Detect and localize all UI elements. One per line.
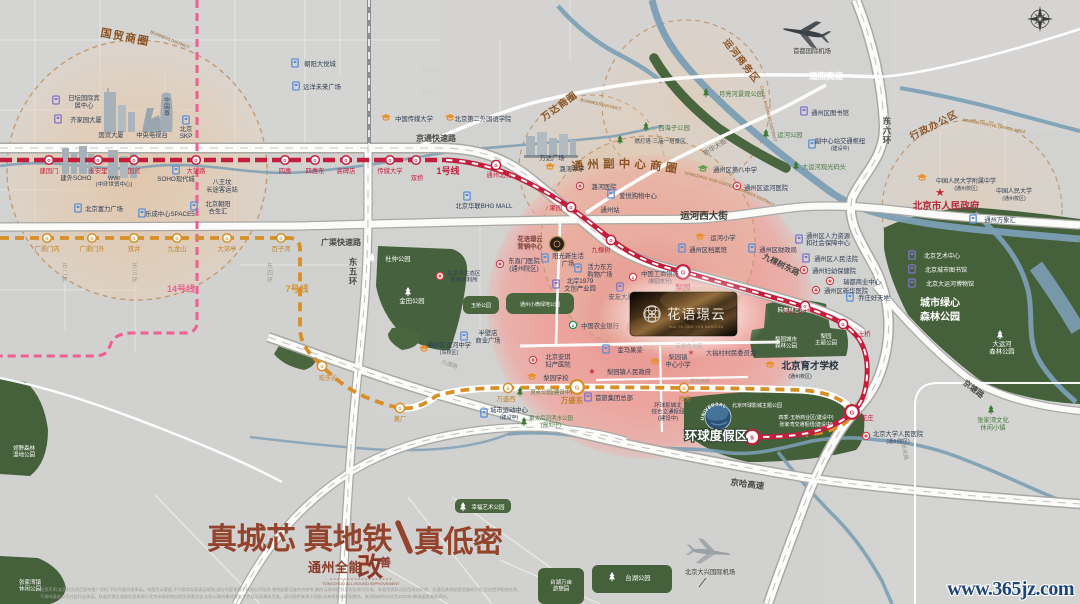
svg-text:京通快速路: 京通快速路 (416, 133, 457, 143)
svg-text:北京环球影城主题公园: 北京环球影城主题公园 (732, 402, 782, 409)
svg-text:玉桥公园: 玉桥公园 (471, 302, 491, 309)
svg-text:G: G (414, 158, 417, 163)
svg-text:G: G (609, 238, 612, 243)
svg-text:G: G (132, 158, 135, 163)
svg-text:大郊亭: 大郊亭 (218, 244, 237, 253)
svg-text:半壁店商业广场: 半壁店商业广场 (475, 328, 500, 345)
svg-text:花语璟云营销中心: 花语璟云营销中心 (517, 234, 543, 251)
svg-text:北京市生态区农桥水利所: 北京市生态区农桥水利所 (447, 269, 481, 284)
svg-text:中央电视台: 中央电视台 (136, 130, 167, 139)
svg-text:G: G (47, 158, 50, 163)
svg-text:东三环: 东三环 (132, 262, 138, 284)
svg-text:杜仲公园: 杜仲公园 (385, 254, 410, 263)
svg-text:朝阳路: 朝阳路 (422, 89, 440, 97)
svg-text:G: G (96, 158, 99, 163)
svg-text:14号线: 14号线 (167, 283, 195, 294)
svg-text:建外SOHO: 建外SOHO (60, 173, 91, 182)
svg-text:双桥: 双桥 (411, 173, 424, 182)
svg-text:国贸: 国贸 (128, 166, 141, 175)
svg-text:韩美林艺术馆: 韩美林艺术馆 (777, 306, 811, 314)
svg-text:G: G (575, 386, 580, 392)
svg-text:万盛东: 万盛东 (560, 395, 584, 405)
svg-text:首都国际机场: 首都国际机场 (793, 46, 831, 55)
svg-text:7号线: 7号线 (285, 283, 308, 294)
svg-text:通州区档案馆: 通州区档案馆 (689, 245, 727, 254)
svg-text:顶点公园(建设中): 顶点公园(建设中) (530, 388, 572, 396)
svg-text:运河小学: 运河小学 (710, 233, 735, 242)
svg-text:东直门医院(通州院区): 东直门医院(通州院区) (508, 256, 540, 273)
svg-text:(通州校区): (通州校区) (788, 373, 812, 380)
svg-text:乔庄好天地: 乔庄好天地 (858, 293, 890, 302)
svg-text:四惠: 四惠 (279, 166, 292, 175)
svg-text:善: 善 (380, 555, 391, 569)
svg-text:黄厂: 黄厂 (394, 414, 407, 423)
svg-text:通州区人力资源和社会保障中心: 通州区人力资源和社会保障中心 (806, 231, 851, 247)
svg-text:北京大兴国际机场: 北京大兴国际机场 (685, 567, 735, 576)
svg-text:G: G (313, 158, 316, 163)
svg-text:通州全能: 通州全能 (308, 560, 362, 575)
svg-text:通州区图书馆: 通州区图书馆 (811, 108, 849, 117)
svg-text:北京朝阳合生汇: 北京朝阳合生汇 (205, 199, 230, 216)
svg-text:HUA YU JING YUN MANSION: HUA YU JING YUN MANSION (669, 325, 724, 329)
svg-text:G: G (90, 236, 93, 241)
svg-text:G: G (279, 236, 282, 241)
svg-text:北京第二外国语学院: 北京第二外国语学院 (455, 114, 512, 123)
svg-text:通州站: 通州站 (601, 205, 621, 214)
svg-text:花语璟云: 花语璟云 (667, 307, 726, 322)
svg-text:大运河观光码头: 大运河观光码头 (802, 162, 846, 171)
svg-text:乐成中心SPACE5: 乐成中心SPACE5 (145, 209, 195, 218)
svg-text:运河西大街: 运河西大街 (680, 210, 728, 222)
svg-text:广渠门外: 广渠门外 (79, 244, 105, 253)
svg-text:TONGZHOU ALL-ROUND IMPROVEMENT: TONGZHOU ALL-ROUND IMPROVEMENT (322, 581, 400, 586)
svg-text:北京市人民政府: 北京市人民政府 (913, 200, 980, 212)
svg-text:首旅集团总部: 首旅集团总部 (595, 393, 633, 402)
svg-text:G: G (850, 411, 855, 417)
svg-text:广渠快速路: 广渠快速路 (321, 237, 362, 247)
svg-text:S: S (750, 436, 754, 442)
svg-text:★: ★ (935, 187, 945, 199)
svg-text:张家湾文化休闲小镇: 张家湾文化休闲小镇 (977, 415, 1009, 432)
svg-text:运河公园: 运河公园 (777, 131, 802, 139)
svg-text:www.365jz.com: www.365jz.com (947, 578, 1075, 600)
svg-text:金田公园: 金田公园 (399, 296, 424, 305)
svg-text:活力东方购物广场: 活力东方购物广场 (587, 262, 612, 279)
svg-text:G: G (194, 158, 197, 163)
svg-text:传媒大学: 传媒大学 (377, 166, 402, 175)
svg-text:环球度假区: 环球度假区 (685, 428, 748, 443)
svg-text:北京城市图书馆: 北京城市图书馆 (925, 266, 967, 274)
svg-text:远洋未来广场: 远洋未来广场 (303, 82, 341, 91)
svg-text:万盛西: 万盛西 (497, 394, 516, 403)
svg-text:东四环: 东四环 (267, 262, 273, 284)
svg-text:北京艺术中心: 北京艺术中心 (924, 252, 960, 260)
svg-text:通州北苑: 通州北苑 (486, 170, 512, 179)
svg-text:瑞都商业中心: 瑞都商业中心 (843, 277, 881, 286)
svg-text:G: G (225, 236, 228, 241)
svg-text:通州万象汇: 通州万象汇 (984, 215, 1015, 224)
svg-text:翠光南街: 翠光南街 (690, 378, 710, 385)
svg-text:北京大运河博物馆: 北京大运河博物馆 (926, 280, 974, 288)
svg-text:G: G (320, 364, 323, 369)
svg-text:群芳: 群芳 (679, 394, 692, 403)
svg-text:永安里: 永安里 (89, 166, 108, 175)
svg-text:通州妇幼保健院: 通州妇幼保健院 (812, 266, 857, 275)
svg-text:九棵树: 九棵树 (592, 245, 612, 254)
svg-text:SOHO现代城: SOHO现代城 (157, 174, 195, 183)
svg-text:北京富力广场: 北京富力广场 (85, 204, 123, 213)
svg-text:通州区运河医院: 通州区运河医院 (744, 183, 789, 192)
svg-text:中国传媒大学: 中国传媒大学 (395, 114, 433, 123)
svg-text:通州小微绿地公园: 通州小微绿地公园 (520, 301, 560, 308)
svg-text:梨园镇人民政府: 梨园镇人民政府 (607, 367, 651, 376)
svg-text:万达广场: 万达广场 (539, 153, 564, 162)
svg-text:幸福艺术公园: 幸福艺术公园 (471, 503, 505, 511)
svg-text:北岸1979文创产业园: 北岸1979文创产业园 (564, 277, 595, 293)
svg-text:G: G (682, 386, 685, 391)
svg-text:真低密: 真低密 (414, 525, 503, 559)
svg-text:双井: 双井 (128, 244, 141, 253)
svg-text:梨园学校: 梨园学校 (543, 373, 569, 382)
svg-text:张家湾交通枢纽(建设中): 张家湾交通枢纽(建设中) (779, 421, 833, 428)
svg-text:齐家园大厦: 齐家园大厦 (70, 115, 102, 124)
svg-text:G: G (132, 236, 135, 241)
svg-text:东五环: 东五环 (349, 257, 358, 286)
svg-text:四季·玉桥商业区(建设中): 四季·玉桥商业区(建设中) (779, 414, 834, 421)
svg-text:东六环: 东六环 (883, 116, 892, 145)
svg-text:爱悦购物中心: 爱悦购物中心 (619, 191, 657, 200)
svg-text:中国尊: 中国尊 (164, 96, 170, 117)
svg-text:大运河森林公园: 大运河森林公园 (989, 339, 1014, 356)
svg-text:G: G (506, 386, 509, 391)
svg-text:G: G (569, 205, 572, 210)
svg-text:G: G (283, 158, 286, 163)
svg-text:广渠门内: 广渠门内 (34, 244, 59, 253)
svg-text:月亮河景观公园: 月亮河景观公园 (719, 89, 763, 98)
svg-text:北京育才学校: 北京育才学校 (781, 360, 839, 372)
svg-text:朝阳大悦城: 朝阳大悦城 (304, 59, 336, 68)
svg-text:高碑店: 高碑店 (337, 166, 356, 175)
svg-text:北京华联BHG MALL: 北京华联BHG MALL (455, 201, 513, 210)
svg-text:燃灯塔·三庙一塔景区: 燃灯塔·三庙一塔景区 (634, 137, 686, 145)
svg-text:花庄: 花庄 (861, 413, 874, 422)
svg-text:通州区第八中学: 通州区第八中学 (713, 165, 757, 174)
svg-text:G: G (841, 322, 844, 327)
svg-text:G: G (45, 236, 48, 241)
svg-text:梨园城市森林公园: 梨园城市森林公园 (775, 335, 798, 350)
svg-text:朝阳北路: 朝阳北路 (422, 66, 446, 74)
svg-text:通燕高速: 通燕高速 (809, 71, 844, 81)
svg-text:欢乐谷: 欢乐谷 (319, 373, 339, 382)
svg-text:国贸大厦: 国贸大厦 (98, 130, 124, 139)
svg-text:不意味着本公司对此作出承诺。轨道交通及道路信息来源于北京市规: 不意味着本公司对此作出承诺。轨道交通及道路信息来源于北京市规划和自然资源委员会,… (40, 593, 451, 600)
svg-text:建国门: 建国门 (40, 166, 59, 175)
svg-text:土桥: 土桥 (858, 329, 871, 338)
svg-text:通州区人民法院: 通州区人民法院 (814, 254, 859, 263)
svg-text:果园: 果园 (549, 204, 562, 212)
svg-text:北京安琪妇产医院: 北京安琪妇产医院 (545, 352, 571, 369)
svg-text:郊野森林湿地公园: 郊野森林湿地公园 (13, 444, 36, 459)
svg-text:台湖万亩游憩园: 台湖万亩游憩园 (550, 578, 573, 593)
svg-text:G: G (344, 158, 347, 163)
svg-text:大望路: 大望路 (187, 166, 207, 175)
svg-text:台湖公园: 台湖公园 (625, 573, 650, 582)
svg-text:西海子公园: 西海子公园 (658, 123, 689, 132)
svg-text:通州区财政局: 通州区财政局 (759, 245, 797, 254)
svg-text:★: ★ (588, 367, 595, 376)
svg-text:G: G (494, 163, 497, 168)
svg-text:百子湾: 百子湾 (272, 244, 292, 253)
svg-text:潞河中学: 潞河中学 (559, 164, 584, 173)
svg-text:1号线: 1号线 (436, 165, 459, 176)
svg-text:北京SKP: 北京SKP (180, 124, 193, 140)
svg-text:张家湾镇休闲公园: 张家湾镇休闲公园 (19, 578, 42, 593)
svg-text:东二环: 东二环 (62, 262, 68, 284)
svg-text:免责声明:本资料为项目宣传推广资料,不作为要约或承诺。地图为: 免责声明:本资料为项目宣传推广资料,不作为要约或承诺。地图为示意图,不代表实际距… (40, 586, 521, 593)
svg-text:G: G (398, 406, 401, 411)
svg-text:九龙山: 九龙山 (168, 244, 187, 253)
svg-text:G: G (388, 158, 391, 163)
svg-text:G: G (175, 236, 178, 241)
svg-text:四惠东: 四惠东 (306, 166, 325, 175)
